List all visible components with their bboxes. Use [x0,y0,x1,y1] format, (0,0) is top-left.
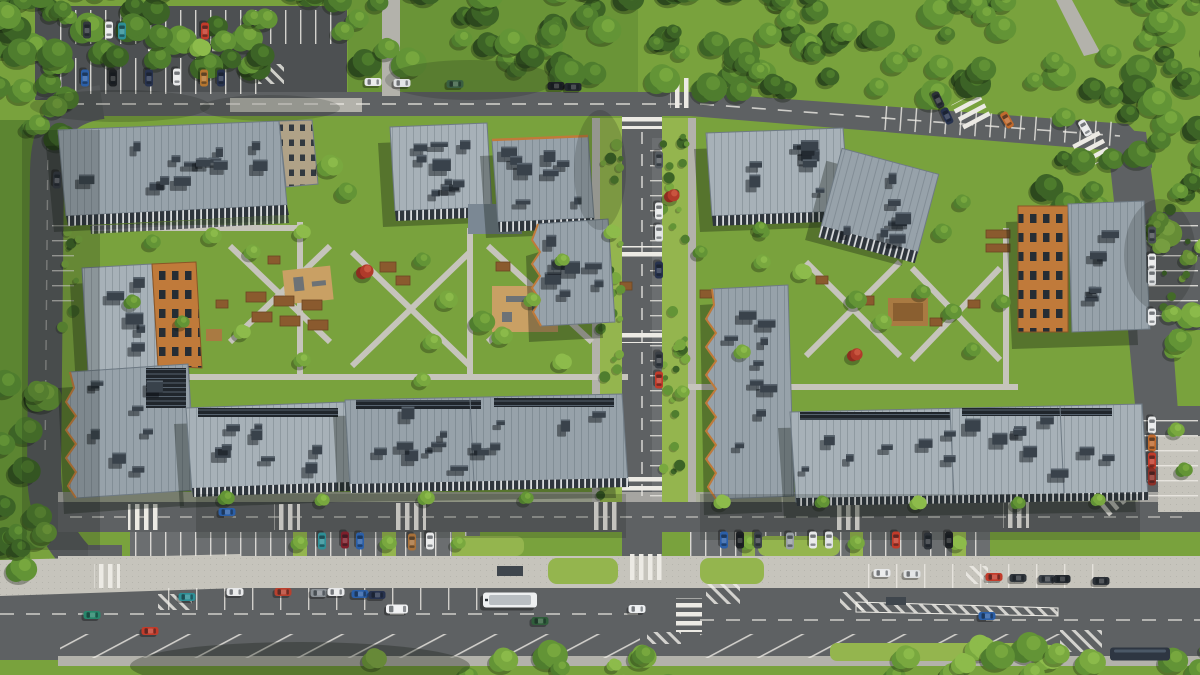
car [977,612,996,622]
dark-bus [1110,648,1170,661]
car [51,169,62,188]
car [199,21,209,40]
car [902,570,921,580]
car [198,68,208,87]
car [546,82,565,92]
car [807,530,817,549]
car [326,588,345,598]
car [653,260,663,279]
car [384,605,408,616]
car [116,21,126,40]
car [823,530,833,549]
car [309,589,328,599]
car [653,223,663,242]
car [363,78,382,88]
car [1146,415,1156,434]
aerial-residential-scene [0,0,1200,675]
bus-shelter-east [886,597,906,605]
car [784,531,794,550]
car [1146,225,1156,244]
car [367,591,386,601]
pergola-east [888,298,928,326]
car [273,588,292,598]
car [530,617,549,627]
car [339,530,349,549]
facade-tan [279,120,318,187]
car [177,593,196,603]
car [217,508,236,518]
tower-facade [152,262,202,368]
car [563,83,582,93]
car [140,627,159,637]
car [1052,575,1071,585]
car [718,530,728,549]
car [225,588,244,598]
car [1146,433,1156,452]
car [1008,574,1027,584]
car [316,531,326,550]
car [143,68,153,87]
building-south-slab-west [174,402,351,508]
car [984,573,1003,583]
car [103,20,113,39]
city-bus [480,593,537,611]
bus-shelter [497,566,523,576]
terrace-facade [1018,206,1068,332]
car [653,350,663,369]
car [653,201,663,220]
car [627,605,646,615]
car [424,531,434,550]
car [890,530,900,549]
car [171,67,181,86]
car [653,370,663,389]
car [1091,577,1110,587]
car [752,530,762,549]
car [79,68,89,87]
car [943,530,953,549]
car [445,80,464,90]
car [922,531,932,550]
car [215,68,225,87]
car [406,532,416,551]
car [354,531,364,550]
car [392,79,411,89]
car [107,68,117,87]
kiosk [206,329,222,341]
car [1146,467,1156,486]
car [350,590,369,600]
car [1146,307,1156,326]
aerial-render [0,0,1200,675]
car [81,20,91,39]
car [653,150,663,169]
car [1146,267,1156,286]
car [82,611,101,621]
car [734,530,744,549]
car [872,569,891,579]
